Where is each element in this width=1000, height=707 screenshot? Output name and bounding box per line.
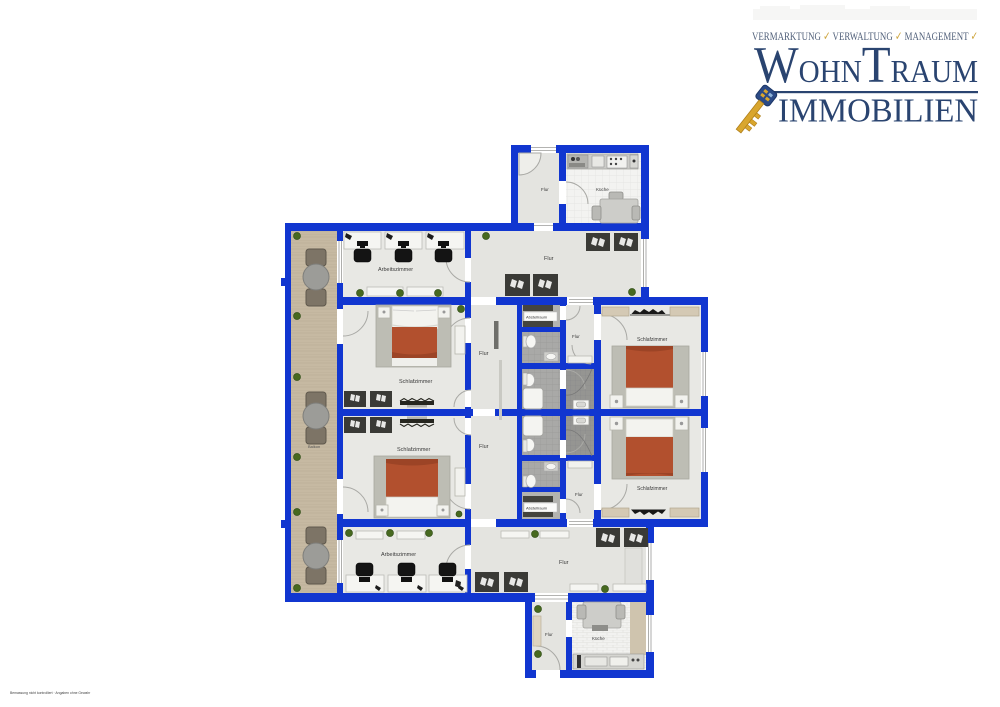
svg-text:Flur: Flur bbox=[575, 492, 583, 497]
svg-text:Flur: Flur bbox=[541, 187, 549, 192]
svg-text:Flur: Flur bbox=[479, 351, 489, 357]
svg-text:Abstellraum: Abstellraum bbox=[526, 315, 548, 320]
svg-text:Schlafzimmer: Schlafzimmer bbox=[399, 379, 432, 385]
svg-text:Balkon: Balkon bbox=[308, 444, 320, 449]
svg-text:Flur: Flur bbox=[544, 256, 554, 262]
svg-text:Küche: Küche bbox=[592, 636, 605, 641]
svg-text:Schlafzimmer: Schlafzimmer bbox=[637, 486, 668, 492]
svg-text:Abstellraum: Abstellraum bbox=[526, 506, 548, 511]
svg-text:IMMOBILIEN: IMMOBILIEN bbox=[778, 93, 978, 130]
svg-text:Flur: Flur bbox=[572, 334, 580, 339]
svg-text:Küche: Küche bbox=[596, 187, 609, 192]
svg-text:Flur: Flur bbox=[479, 444, 489, 450]
svg-text:WOHNTRAUM: WOHNTRAUM bbox=[754, 37, 978, 94]
svg-text:Schlafzimmer: Schlafzimmer bbox=[397, 447, 430, 453]
svg-text:Flur: Flur bbox=[545, 632, 553, 637]
svg-text:Flur: Flur bbox=[559, 560, 569, 566]
svg-text:Arbeitszimmer: Arbeitszimmer bbox=[381, 552, 416, 558]
svg-text:Bemassung nicht kontrolliert ·: Bemassung nicht kontrolliert · Angaben o… bbox=[10, 691, 91, 695]
svg-text:Schlafzimmer: Schlafzimmer bbox=[637, 337, 668, 343]
svg-text:Arbeitszimmer: Arbeitszimmer bbox=[378, 267, 413, 273]
